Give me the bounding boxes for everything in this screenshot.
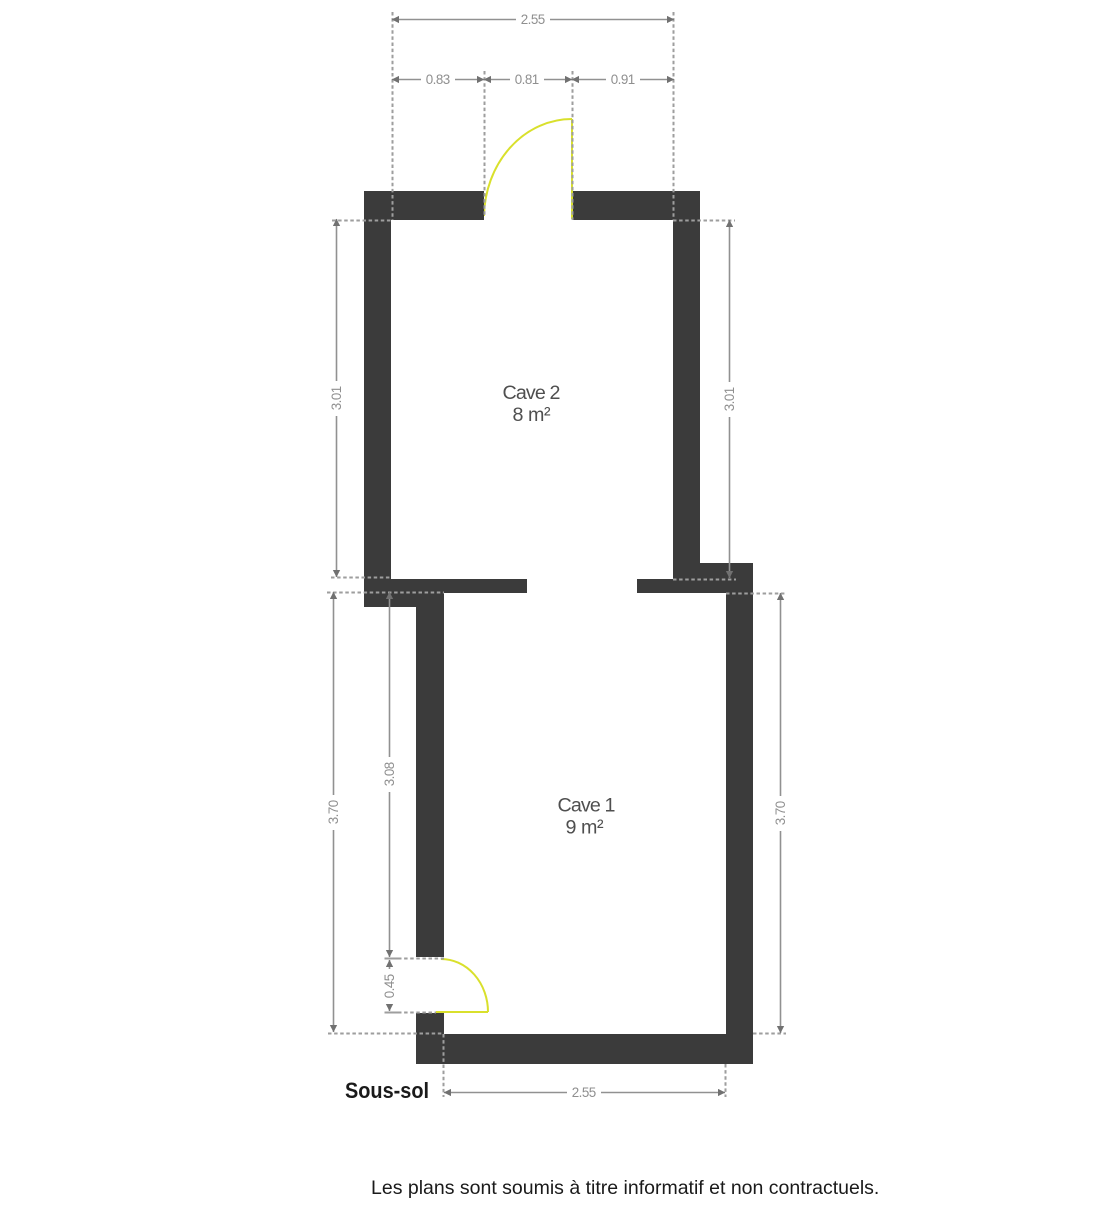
svg-text:Cave 2: Cave 2	[503, 382, 561, 404]
svg-text:3.08: 3.08	[382, 762, 397, 787]
svg-text:0.45: 0.45	[382, 974, 397, 999]
svg-text:0.81: 0.81	[515, 72, 540, 87]
svg-text:3.70: 3.70	[326, 800, 341, 825]
svg-text:Sous-sol: Sous-sol	[345, 1078, 429, 1103]
svg-text:0.83: 0.83	[426, 72, 451, 87]
svg-text:2.55: 2.55	[521, 12, 546, 27]
svg-text:8 m²: 8 m²	[513, 404, 551, 426]
svg-text:3.70: 3.70	[773, 801, 788, 826]
svg-text:3.01: 3.01	[722, 387, 737, 412]
svg-text:9 m²: 9 m²	[566, 817, 604, 839]
svg-text:Les plans sont soumis à titre: Les plans sont soumis à titre informatif…	[371, 1177, 879, 1199]
svg-text:3.01: 3.01	[329, 386, 344, 411]
svg-text:2.55: 2.55	[572, 1085, 597, 1100]
svg-text:0.91: 0.91	[611, 72, 636, 87]
svg-text:Cave 1: Cave 1	[558, 795, 616, 817]
